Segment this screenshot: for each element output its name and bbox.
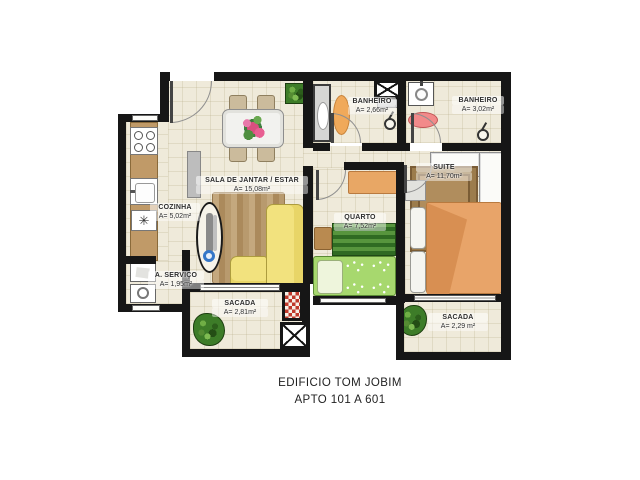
room-name: BANHEIRO [348,97,396,106]
room-name: SACADA [212,299,268,308]
double-bed-blanket-fold [427,203,467,295]
wall [118,114,126,312]
room-area: A= 7,52m² [334,222,386,231]
label-sala: SALA DE JANTAR / ESTAR A= 15,08m² [196,176,308,194]
kitchen-sink-basin [135,183,155,203]
single-bed [313,256,396,296]
stove-burner [134,131,143,140]
label-servico: A. SERVIÇO A= 1,95m² [148,271,204,289]
suite-balcony-sliding-door [414,295,496,301]
stove-burner [146,143,155,152]
barbecue-grill [282,289,303,321]
label-sacada-2: SACADA A= 2,29 m² [428,313,488,331]
wall [126,256,156,264]
kitchen-sink [130,178,158,205]
double-bed [426,202,502,294]
bedroom-window [320,298,386,303]
wall [442,143,502,151]
room-area: A= 15,08m² [196,185,308,194]
bathroom1-shower-head-icon [384,118,396,130]
decor-oval-circle [203,250,215,262]
room-name: SUITE [416,163,472,172]
wall [303,80,313,148]
laundry-window [132,305,160,311]
bathroom2-door [411,113,414,143]
dining-chair [257,146,275,162]
stove-burner [134,143,143,152]
decor-oval-bar [206,213,213,253]
label-quarto: QUARTO A= 7,52m² [334,213,386,231]
wall [396,352,511,360]
cooktop-fan-symbol: ✳ [139,213,150,228]
room-area: A= 3,02m² [452,105,504,114]
double-bed-pillow [410,207,426,249]
room-name: COZINHA [150,203,200,212]
label-banheiro-2: BANHEIRO A= 3,02m² [452,96,504,114]
bathroom1-door [331,113,334,143]
plan-title: EDIFICIO TOM JOBIM APTO 101 A 601 [180,375,500,408]
single-bed-pillow [317,260,343,294]
room-area: A= 5,02m² [150,212,200,221]
bathroom2-shower-head-icon [477,129,489,141]
label-banheiro-1: BANHEIRO A= 2,66m² [348,97,396,115]
bathroom2-vanity [408,82,434,106]
room-name: SALA DE JANTAR / ESTAR [196,176,308,185]
sofa-main [266,204,304,291]
bedroom-door [316,170,319,200]
label-cozinha: COZINHA A= 5,02m² [150,203,200,221]
room-name: A. SERVIÇO [148,271,204,280]
double-bed-pillow [410,251,426,293]
room-area: A= 2,66m² [348,106,396,115]
sala-balcony-sliding-door [200,284,280,291]
bedroom-dresser [348,171,398,194]
building-name: EDIFICIO TOM JOBIM [180,375,500,392]
bathroom1-vanity [313,84,331,142]
wall [313,143,330,151]
wall [344,162,404,170]
flower-centerpiece [238,112,268,144]
plant-balcony-1 [193,313,225,346]
label-sacada-1: SACADA A= 2,81m² [212,299,268,317]
room-area: A= 11,70m² [416,172,472,181]
bathroom2-basin [415,88,428,101]
kitchen-faucet [130,190,135,193]
dining-chair [229,146,247,162]
bedroom-nightstand [314,227,332,250]
room-area: A= 2,29 m² [428,322,488,331]
kitchen-window [132,115,158,121]
floorplan-canvas: ✳ [0,0,640,480]
suite-door [404,165,407,193]
wall [182,349,310,357]
duct-x-icon [377,83,398,96]
wall [214,72,510,81]
wall [182,283,190,357]
duct-shaft [280,322,309,349]
entrance-door [170,81,173,123]
stove-burner [146,131,155,140]
room-area: A= 2,81m² [212,308,268,317]
room-name: BANHEIRO [452,96,504,105]
room-name: SACADA [428,313,488,322]
bathroom1-basin [317,102,329,130]
stove [130,127,158,155]
label-suite: SUITE A= 11,70m² [416,163,472,181]
decor-oval [196,202,223,273]
room-area: A= 1,95m² [148,280,204,289]
duct-x-icon [283,325,306,346]
room-name: QUARTO [334,213,386,222]
wall [404,143,410,151]
decor-oval-bar [213,215,217,251]
apartment-range: APTO 101 A 601 [180,392,500,409]
wall [501,294,511,360]
